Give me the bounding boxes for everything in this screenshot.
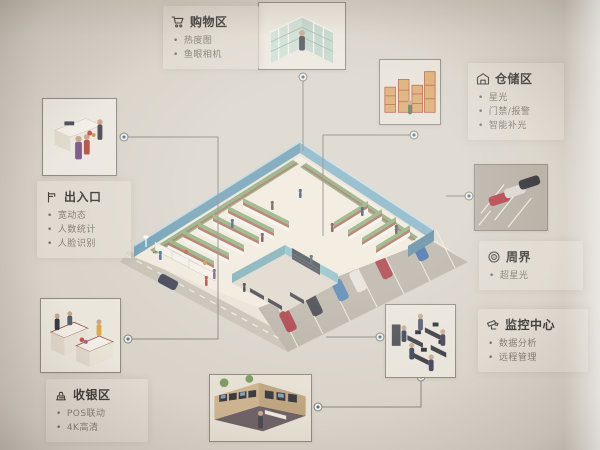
- panel-bullet: POS联动: [56, 408, 140, 422]
- panel-bullet: 人数统计: [47, 224, 123, 238]
- callout-shopping-area: 购物区 热度图 鱼眼相机: [163, 6, 259, 69]
- entrance-people-photo: [42, 98, 117, 176]
- panel-bullet: 门禁/报警: [478, 106, 556, 120]
- radar-icon: [487, 250, 501, 264]
- parking-cars-photo: [474, 164, 548, 231]
- panel-bullet: 智能补光: [478, 120, 556, 134]
- callout-perimeter: 周界 超星光: [479, 241, 583, 290]
- callout-entrance-exit: 出入口 宽动态 人数统计 人脸识别: [37, 181, 131, 258]
- cctv-icon: [486, 318, 500, 332]
- warehouse-worker-figure: [408, 101, 412, 115]
- shopper-figure: [299, 30, 305, 50]
- video-wall-room-photo: [209, 374, 312, 442]
- panel-title-text: 监控中心: [505, 316, 555, 333]
- panel-title-text: 周界: [506, 248, 531, 265]
- callout-storage-area: 仓储区 星光 门禁/报警 智能补光: [468, 63, 564, 140]
- panel-title-text: 收银区: [73, 386, 111, 403]
- monitoring-office-image: [386, 305, 455, 377]
- shopping-shelves-photo: [258, 2, 346, 70]
- gate-icon: [45, 190, 59, 204]
- panel-bullet: 人脸识别: [47, 238, 123, 252]
- video-wall-room-image: [210, 375, 311, 441]
- shopping-shelves-image: [259, 3, 345, 69]
- panel-bullet: 宽动态: [47, 210, 123, 224]
- warehouse-racks-photo: [379, 59, 441, 125]
- callout-cashier-area: 收银区 POS联动 4K高清: [46, 379, 148, 442]
- parking-cars-image: [475, 165, 547, 230]
- warehouse-icon: [476, 72, 490, 86]
- checkout-counters-image: [41, 299, 120, 372]
- callout-monitoring-center: 监控中心 数据分析 远程管理: [478, 309, 588, 372]
- panel-bullet: 4K高清: [56, 422, 140, 436]
- panel-bullet: 热度图: [173, 35, 251, 49]
- panel-bullet: 星光: [478, 92, 556, 106]
- panel-title-text: 购物区: [190, 13, 228, 30]
- smart-retail-diagram: 购物区 热度图 鱼眼相机 仓储区 星光 门禁/报警 智能补光: [0, 0, 600, 450]
- checkout-counters-photo: [40, 298, 121, 373]
- panel-title-text: 出入口: [64, 188, 102, 205]
- panel-bullet: 超星光: [489, 270, 575, 284]
- monitoring-office-photo: [385, 304, 456, 378]
- panel-bullet: 远程管理: [488, 352, 580, 366]
- panel-bullet: 鱼眼相机: [173, 49, 251, 63]
- panel-bullet: 数据分析: [488, 338, 580, 352]
- warehouse-racks-image: [380, 60, 440, 124]
- cart-icon: [171, 15, 185, 29]
- entrance-people-image: [43, 99, 116, 175]
- panel-title-text: 仓储区: [495, 70, 533, 87]
- register-icon: [54, 388, 68, 402]
